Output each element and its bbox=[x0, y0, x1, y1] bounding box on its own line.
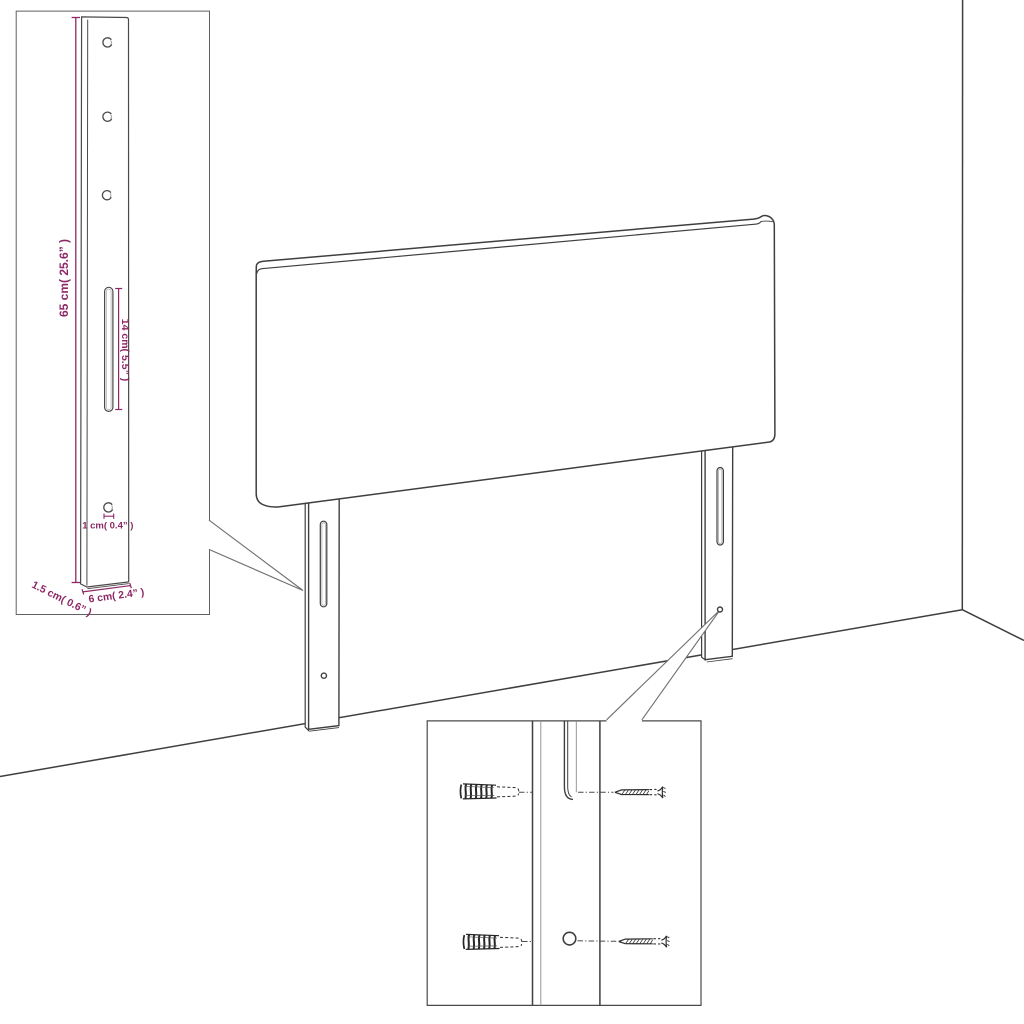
svg-text:1 cm( 0.4” ): 1 cm( 0.4” ) bbox=[82, 520, 133, 531]
svg-text:65 cm( 25.6” ): 65 cm( 25.6” ) bbox=[57, 239, 71, 317]
svg-text:14 cm( 5.5” ): 14 cm( 5.5” ) bbox=[119, 319, 131, 381]
